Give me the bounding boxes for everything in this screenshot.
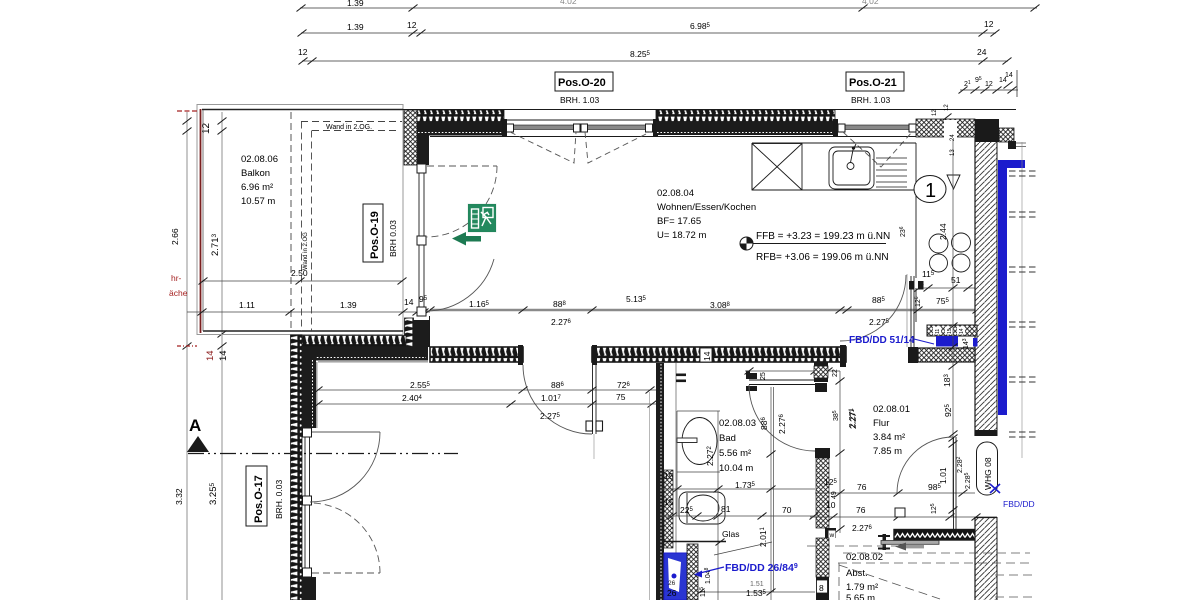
svg-text:12: 12: [944, 104, 950, 111]
svg-text:A: A: [189, 416, 201, 435]
svg-text:49: 49: [831, 491, 838, 499]
svg-text:70: 70: [782, 505, 792, 515]
svg-text:24: 24: [977, 47, 987, 57]
svg-text:7.85 m: 7.85 m: [873, 446, 902, 457]
svg-text:24: 24: [950, 134, 956, 141]
svg-text:76: 76: [856, 505, 866, 515]
svg-text:26: 26: [667, 588, 677, 598]
svg-text:Pos.O-19: Pos.O-19: [369, 211, 381, 259]
svg-text:02.08.02: 02.08.02: [846, 552, 883, 563]
svg-text:Glas: Glas: [722, 529, 739, 539]
svg-text:02.08.04: 02.08.04: [657, 188, 694, 199]
svg-text:14: 14: [702, 351, 712, 361]
svg-text:BF= 17.65: BF= 17.65: [657, 216, 701, 227]
svg-text:25: 25: [760, 372, 767, 380]
svg-text:FBD/DD 51/14: FBD/DD 51/14: [849, 335, 915, 346]
svg-text:02.08.06: 02.08.06: [241, 154, 278, 165]
svg-text:BRH. 1.03: BRH. 1.03: [560, 95, 599, 105]
svg-text:äche: äche: [169, 288, 188, 298]
svg-text:81: 81: [721, 504, 731, 514]
svg-text:4.02: 4.02: [862, 0, 879, 6]
svg-text:10.04 m: 10.04 m: [719, 463, 753, 474]
svg-text:12: 12: [932, 109, 938, 116]
svg-text:11: 11: [935, 329, 941, 334]
svg-text:5.56 m²: 5.56 m²: [719, 448, 751, 459]
svg-text:15: 15: [664, 497, 674, 507]
svg-text:Balkon: Balkon: [241, 168, 270, 179]
svg-text:RFB= +3.06 = 199.06 m ü.NN: RFB= +3.06 = 199.06 m ü.NN: [756, 252, 889, 263]
svg-text:FBD/DD: FBD/DD: [1003, 499, 1035, 509]
svg-text:02.08.03: 02.08.03: [719, 418, 756, 429]
svg-text:1: 1: [925, 180, 936, 202]
svg-text:22: 22: [832, 369, 839, 377]
svg-text:Wand in 2.OG: Wand in 2.OG: [303, 232, 309, 270]
svg-text:5.65 m: 5.65 m: [846, 593, 875, 600]
svg-text:14: 14: [1005, 72, 1013, 79]
svg-text:12: 12: [985, 81, 993, 88]
svg-text:1.39: 1.39: [340, 300, 357, 310]
svg-text:Wohnen/Essen/Kochen: Wohnen/Essen/Kochen: [657, 202, 756, 213]
svg-text:12: 12: [298, 47, 308, 57]
svg-text:75: 75: [616, 392, 626, 402]
svg-text:2.66: 2.66: [170, 228, 180, 245]
svg-text:Abst.: Abst.: [846, 568, 868, 579]
svg-text:15: 15: [947, 328, 953, 334]
svg-text:1.79 m²: 1.79 m²: [846, 582, 878, 593]
svg-text:1.11: 1.11: [239, 300, 255, 310]
svg-text:Pos.O-21: Pos.O-21: [849, 77, 897, 89]
svg-text:4.02: 4.02: [560, 0, 577, 6]
svg-text:1.39: 1.39: [347, 22, 364, 32]
svg-text:12: 12: [407, 20, 417, 30]
svg-text:14: 14: [205, 350, 216, 361]
svg-text:BRH. 0.03: BRH. 0.03: [274, 480, 284, 519]
svg-text:U= 18.72 m: U= 18.72 m: [657, 230, 706, 241]
svg-text:BRH 0.03: BRH 0.03: [388, 220, 398, 257]
svg-text:Pos.O-20: Pos.O-20: [558, 77, 606, 89]
svg-text:3.32: 3.32: [174, 488, 184, 505]
svg-text:51: 51: [951, 275, 961, 285]
svg-text:8: 8: [819, 583, 824, 593]
svg-text:14: 14: [959, 328, 965, 334]
svg-text:3.84 m²: 3.84 m²: [873, 432, 905, 443]
svg-text:12: 12: [984, 19, 994, 29]
svg-text:1.51: 1.51: [750, 581, 764, 588]
svg-text:BRH. 1.03: BRH. 1.03: [851, 95, 890, 105]
svg-text:1.01: 1.01: [938, 467, 948, 484]
svg-text:02.08.01: 02.08.01: [873, 404, 910, 415]
svg-text:10.57 m: 10.57 m: [241, 196, 275, 207]
svg-text:10: 10: [826, 500, 836, 510]
svg-text:1.39: 1.39: [347, 0, 364, 8]
svg-text:w: w: [829, 532, 835, 539]
svg-text:2.50: 2.50: [291, 268, 308, 278]
svg-text:FBD/DD 26/849: FBD/DD 26/849: [725, 562, 798, 574]
svg-text:hr-: hr-: [171, 273, 182, 283]
svg-text:Bad: Bad: [719, 433, 736, 444]
svg-text:6.96 m²: 6.96 m²: [241, 182, 273, 193]
svg-text:Pos.O-17: Pos.O-17: [253, 475, 265, 523]
svg-text:76: 76: [857, 482, 867, 492]
svg-text:Flur: Flur: [873, 418, 889, 429]
svg-text:26: 26: [668, 580, 676, 587]
svg-text:14: 14: [404, 297, 414, 307]
svg-text:14: 14: [218, 350, 229, 361]
svg-text:Wand in 2.OG.: Wand in 2.OG.: [326, 124, 372, 131]
svg-text:FFB = +3.23 = 199.23 m ü.NN: FFB = +3.23 = 199.23 m ü.NN: [756, 231, 890, 242]
svg-text:15: 15: [664, 471, 674, 481]
svg-text:2.44: 2.44: [938, 223, 948, 240]
